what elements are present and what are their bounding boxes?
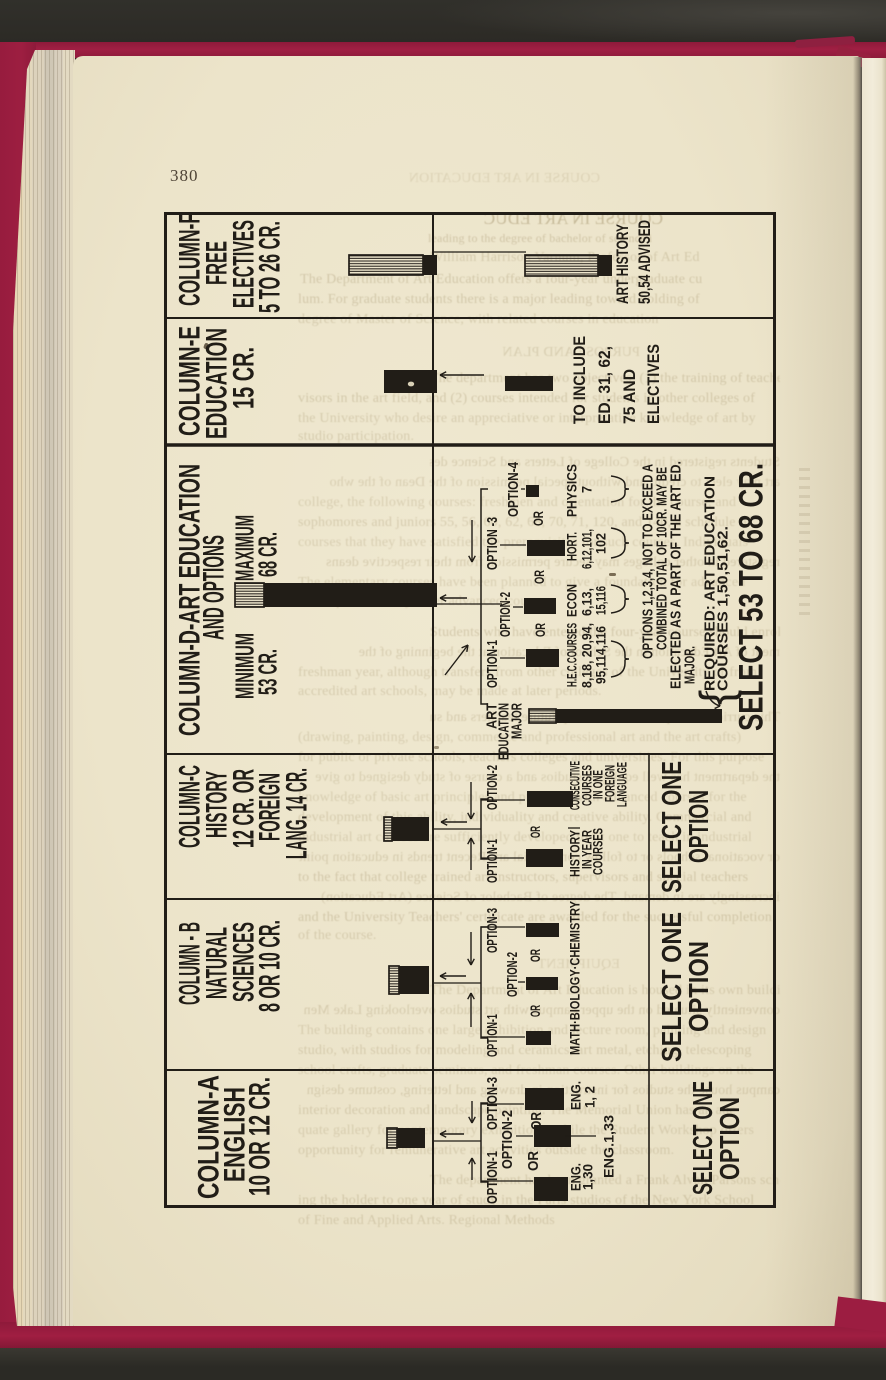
svg-text:ECON: ECON: [565, 584, 580, 617]
svg-text:MATH·BIOLOGY·CHEMISTRY: MATH·BIOLOGY·CHEMISTRY: [568, 901, 583, 1055]
svg-text:OR: OR: [527, 826, 543, 838]
svg-text:COURSES: COURSES: [591, 828, 606, 875]
svg-text:OR: OR: [528, 1112, 545, 1130]
svg-text:OR: OR: [527, 949, 543, 962]
svg-text:7: 7: [580, 486, 595, 493]
svg-text:8 OR 10 CR.: 8 OR 10 CR.: [254, 920, 287, 1012]
svg-text:OPTION-4: OPTION-4: [505, 461, 522, 517]
svg-text:ED. 31, 62,: ED. 31, 62,: [595, 346, 614, 424]
svg-text:ART HISTORY: ART HISTORY: [613, 224, 632, 304]
svg-text:HORT.: HORT.: [565, 532, 580, 561]
svg-text:OPTION-2: OPTION-2: [484, 765, 501, 810]
svg-text:ENG.: ENG.: [569, 1081, 584, 1110]
svg-text:OPTION-2: OPTION-2: [504, 952, 521, 997]
svg-text:AND OPTIONS: AND OPTIONS: [198, 535, 231, 640]
svg-text:ELECTIVES: ELECTIVES: [644, 344, 663, 424]
svg-text:OPTION: OPTION: [714, 1097, 745, 1180]
svg-text:15,116: 15,116: [594, 586, 609, 615]
svg-text:PHYSICS: PHYSICS: [565, 464, 580, 517]
svg-text:95,114,116: 95,114,116: [594, 626, 609, 684]
svg-text:OPTION: OPTION: [683, 790, 714, 863]
svg-text:53 CR.: 53 CR.: [253, 649, 283, 695]
svg-text:OR: OR: [527, 1005, 543, 1017]
svg-text:50,54 ADVISED: 50,54 ADVISED: [635, 220, 654, 304]
svg-text:LANGUAGE: LANGUAGE: [615, 762, 630, 807]
svg-text:OR: OR: [530, 511, 546, 526]
svg-text:8,18, 20,94,: 8,18, 20,94,: [580, 623, 595, 688]
svg-text:H.E.C.COURSES: H.E.C.COURSES: [565, 623, 580, 687]
svg-text:6,13,: 6,13,: [580, 588, 595, 616]
svg-text:MAJOR: MAJOR: [509, 703, 525, 739]
svg-text:15 CR.: 15 CR.: [228, 347, 261, 409]
svg-text:OPTION-3: OPTION-3: [484, 908, 501, 953]
svg-text:OPTION-2: OPTION-2: [499, 1110, 516, 1169]
svg-text:68 CR.: 68 CR.: [253, 532, 283, 577]
svg-text:1, 2: 1, 2: [583, 1086, 598, 1108]
svg-text:102: 102: [594, 533, 609, 554]
svg-text:COURSES 1,50,51,62.: COURSES 1,50,51,62.: [715, 526, 731, 691]
svg-text:MAJOR.: MAJOR.: [682, 646, 698, 684]
svg-text:OR: OR: [525, 1151, 542, 1171]
svg-text:OPTION-1: OPTION-1: [484, 1014, 501, 1057]
svg-text:OPTION -3: OPTION -3: [484, 517, 501, 570]
svg-text:OR: OR: [531, 570, 547, 584]
svg-text:ENG.1,33: ENG.1,33: [602, 1114, 617, 1178]
svg-text:OPTION-1: OPTION-1: [484, 839, 501, 883]
svg-text:5 TO 26 CR.: 5 TO 26 CR.: [254, 221, 287, 313]
svg-text:OPTION: OPTION: [683, 941, 714, 1032]
svg-text:LANG. 14 CR.: LANG. 14 CR.: [281, 768, 314, 859]
svg-text:6,12,101,: 6,12,101,: [580, 529, 595, 569]
svg-text:10 OR 12 CR.: 10 OR 12 CR.: [244, 1077, 277, 1196]
svg-text:OPTION-1: OPTION-1: [484, 640, 501, 688]
svg-text:1,30: 1,30: [581, 1164, 596, 1190]
svg-text:TO INCLUDE: TO INCLUDE: [570, 336, 589, 424]
svg-text:SELECT 53 TO 68 CR.: SELECT 53 TO 68 CR.: [733, 463, 771, 731]
svg-text:OPTION-2: OPTION-2: [497, 592, 514, 637]
svg-text:75 AND: 75 AND: [620, 369, 639, 424]
svg-text:OR: OR: [532, 623, 548, 637]
